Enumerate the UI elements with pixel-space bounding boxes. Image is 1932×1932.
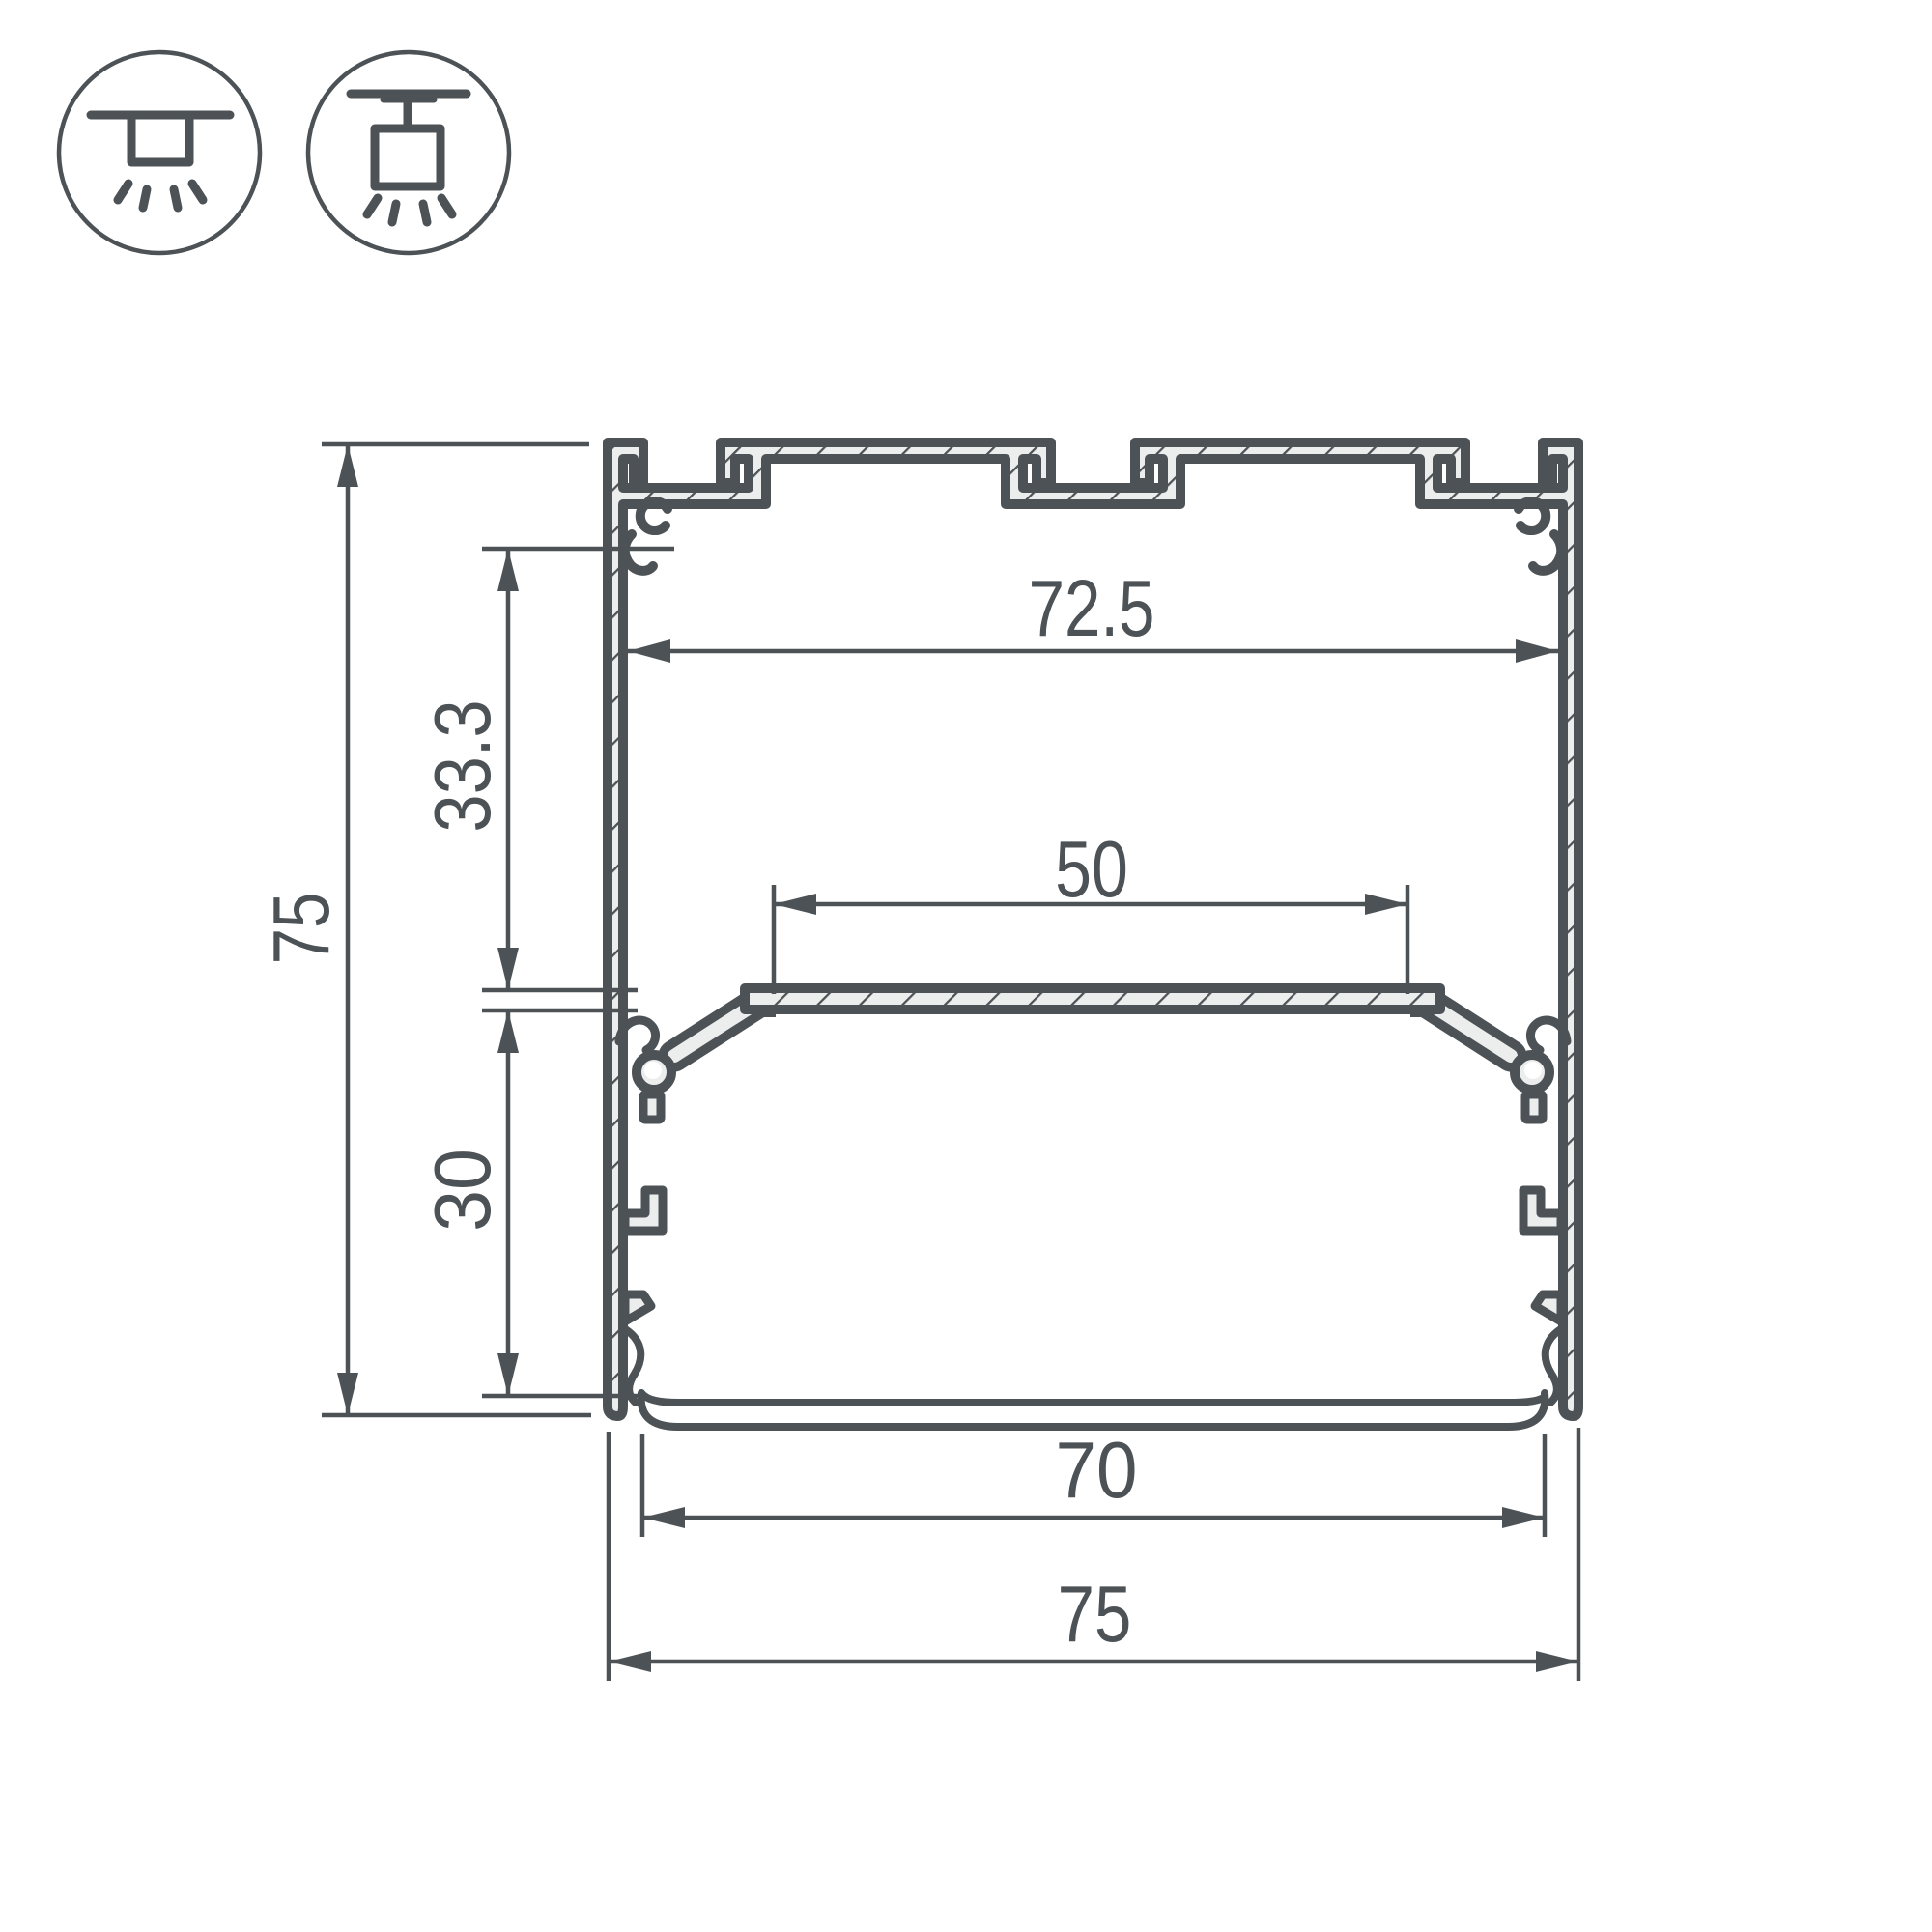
svg-text:72.5: 72.5 <box>1029 564 1155 653</box>
svg-text:75: 75 <box>257 893 346 965</box>
svg-text:50: 50 <box>1055 825 1128 915</box>
svg-text:70: 70 <box>1056 1425 1138 1515</box>
svg-text:33.3: 33.3 <box>418 699 508 832</box>
svg-text:75: 75 <box>1058 1570 1132 1659</box>
svg-text:30: 30 <box>416 1149 506 1232</box>
